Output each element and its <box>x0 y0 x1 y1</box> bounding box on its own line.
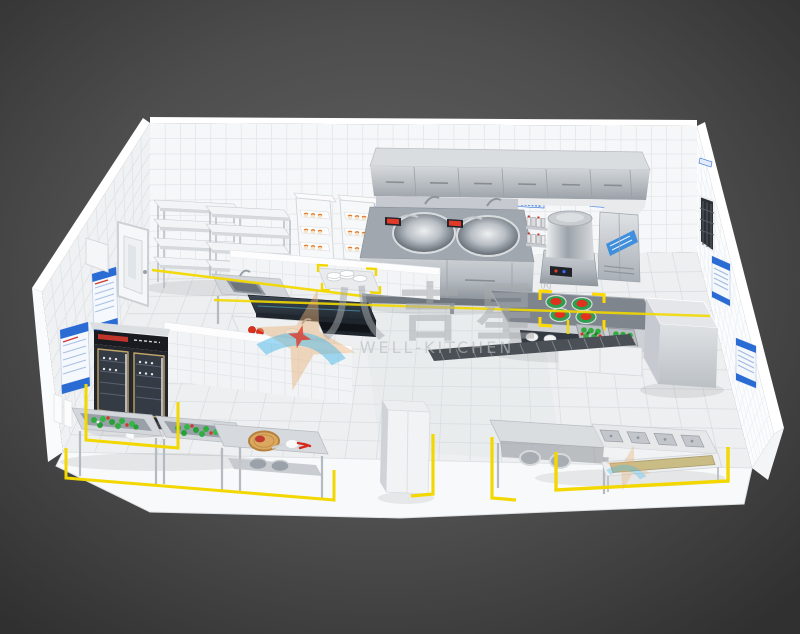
freezer-door <box>134 353 164 418</box>
poster <box>736 338 756 388</box>
poster <box>60 322 90 394</box>
bun-rack <box>294 193 336 262</box>
kitchen-3d-render: 八吉星 ® WELL-KITCHEN <box>0 0 800 634</box>
scene: 八吉星 ® WELL-KITCHEN <box>0 0 800 634</box>
poster <box>712 256 730 306</box>
entry-door <box>118 222 148 306</box>
walk-in-cooler <box>644 298 718 388</box>
wall-vent <box>700 196 714 252</box>
watermark-en-text: WELL-KITCHEN <box>360 338 515 357</box>
tall-white-cabinet <box>380 400 430 494</box>
watermark-registered-mark: ® <box>539 278 553 294</box>
freezer-door <box>98 349 128 414</box>
soup-pot-cooker <box>540 211 598 286</box>
